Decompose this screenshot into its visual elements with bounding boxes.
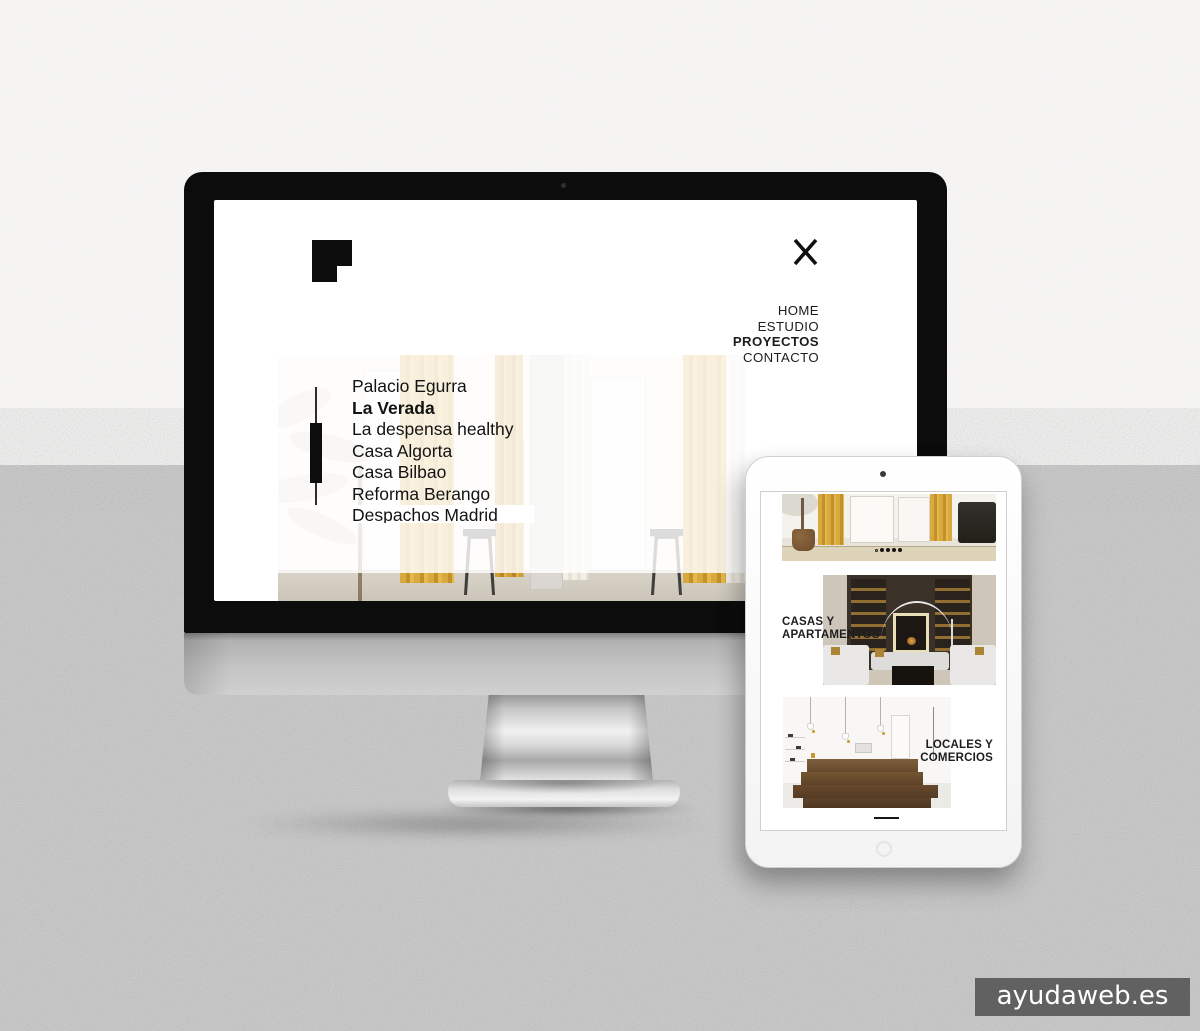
pendant-lamp-shade bbox=[807, 723, 814, 730]
project-link[interactable]: Reforma Berango bbox=[352, 484, 652, 506]
slide-mirror bbox=[850, 496, 894, 543]
category-line: CASAS Y bbox=[782, 616, 880, 629]
brand-logo-block bbox=[312, 240, 352, 266]
white-sofa bbox=[823, 645, 869, 685]
pendant-lamp-bulb bbox=[812, 730, 815, 733]
nav-item-estudio[interactable]: ESTUDIO bbox=[599, 319, 819, 335]
close-icon bbox=[792, 237, 820, 267]
coffee-table bbox=[892, 666, 934, 685]
tablet-screen: CASAS Y APARTAMENTOS bbox=[760, 491, 1007, 831]
project-link-active[interactable]: La Verada bbox=[352, 398, 652, 420]
tablet-mockup: CASAS Y APARTAMENTOS bbox=[745, 456, 1022, 868]
monitor-stand-base bbox=[448, 780, 680, 807]
slide-plant-leaves bbox=[782, 494, 818, 516]
nav-item-proyectos-active[interactable]: PROYECTOS bbox=[599, 334, 819, 350]
pendant-lamp-bulb bbox=[882, 732, 885, 735]
project-list: Palacio Egurra La Verada La despensa hea… bbox=[352, 371, 652, 523]
category-link-locales[interactable]: LOCALES Y COMERCIOS bbox=[871, 739, 993, 764]
shop-shoe bbox=[796, 746, 801, 749]
shop-shoe bbox=[788, 734, 793, 737]
project-link[interactable]: Palacio Egurra bbox=[352, 376, 652, 398]
pendant-lamp-shade bbox=[877, 725, 884, 732]
page-indicator-line bbox=[874, 817, 899, 819]
gold-pillow bbox=[831, 647, 840, 655]
project-link[interactable]: Casa Bilbao bbox=[352, 462, 652, 484]
pendant-lamp-bulb bbox=[847, 740, 850, 743]
slide-plant-pot bbox=[792, 529, 815, 551]
monitor-camera-dot bbox=[561, 183, 566, 188]
carousel-dots bbox=[875, 548, 902, 552]
nav-item-home[interactable]: HOME bbox=[599, 303, 819, 319]
carousel-dot[interactable] bbox=[886, 548, 890, 552]
list-scroll-thumb[interactable] bbox=[310, 423, 322, 483]
main-navigation: HOME ESTUDIO PROYECTOS CONTACTO bbox=[599, 303, 819, 365]
pendant-lamp-shade bbox=[842, 733, 849, 740]
shop-shelf bbox=[785, 761, 805, 762]
project-link[interactable]: Despachos Madrid bbox=[352, 505, 652, 523]
pendant-lamp-cord bbox=[880, 697, 881, 725]
category-link-casas[interactable]: CASAS Y APARTAMENTOS bbox=[782, 616, 880, 641]
close-menu-button[interactable] bbox=[792, 237, 820, 267]
carousel-dot[interactable] bbox=[880, 548, 884, 552]
wood-counter-slab bbox=[793, 785, 938, 798]
shop-register bbox=[855, 743, 872, 753]
white-sofa bbox=[950, 645, 996, 685]
slide-dark-sofa bbox=[958, 502, 996, 543]
shop-shelf bbox=[785, 749, 805, 750]
shop-shelf bbox=[785, 737, 805, 738]
project-link[interactable]: Casa Algorta bbox=[352, 441, 652, 463]
category-line: APARTAMENTOS bbox=[782, 629, 880, 642]
watermark-label: ayudaweb.es bbox=[975, 978, 1190, 1016]
gold-pillow bbox=[975, 647, 984, 655]
project-link[interactable]: La despensa healthy bbox=[352, 419, 652, 441]
category-line: COMERCIOS bbox=[871, 752, 993, 765]
carousel-dot[interactable] bbox=[898, 548, 902, 552]
wood-counter-slab bbox=[803, 798, 931, 808]
pendant-lamp-cord bbox=[810, 697, 811, 723]
slide-door-frame bbox=[898, 497, 930, 542]
mockup-scene: Palacio Egurra La Verada La despensa hea… bbox=[0, 0, 1200, 1031]
brand-logo-block bbox=[312, 266, 337, 282]
nav-item-contacto[interactable]: CONTACTO bbox=[599, 350, 819, 366]
counter-gold-item bbox=[811, 753, 815, 758]
slide-yellow-curtain bbox=[818, 494, 844, 545]
carousel-dot[interactable] bbox=[892, 548, 896, 552]
pendant-lamp-cord bbox=[845, 697, 846, 733]
slide-plant-trunk bbox=[801, 498, 804, 531]
monitor-stand-neck bbox=[480, 695, 653, 781]
category-line: LOCALES Y bbox=[871, 739, 993, 752]
gold-pillow bbox=[875, 649, 884, 657]
slide-yellow-curtain bbox=[930, 494, 952, 541]
brand-logo[interactable] bbox=[312, 240, 352, 282]
shop-shoe bbox=[790, 758, 795, 761]
carousel-dot-active[interactable] bbox=[875, 549, 878, 552]
tablet-home-button[interactable] bbox=[876, 841, 892, 857]
wood-counter-slab bbox=[801, 772, 923, 785]
tablet-camera-dot bbox=[880, 471, 886, 477]
